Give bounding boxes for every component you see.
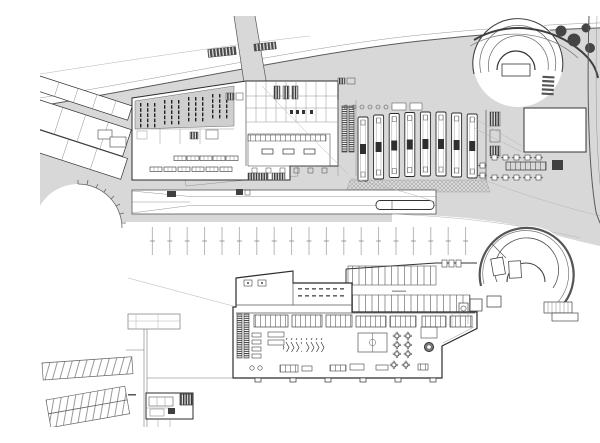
plant-equipment	[180, 394, 192, 405]
parking-row-south	[348, 295, 470, 314]
bus-platform	[374, 115, 384, 179]
pedestrian-crossing-west	[208, 47, 237, 58]
projection-line	[128, 278, 233, 306]
flat-roof-building	[524, 108, 586, 152]
parcel-annex	[110, 137, 126, 147]
bus-platform	[436, 112, 446, 176]
car	[509, 261, 522, 279]
roof-teeth	[442, 260, 461, 267]
parking-strip	[346, 260, 477, 314]
lower-building	[233, 271, 477, 382]
escalator	[342, 106, 347, 152]
loading-dock	[248, 173, 268, 180]
articulated-bus	[376, 201, 434, 210]
tree	[556, 26, 567, 37]
escalator	[237, 314, 242, 358]
bus-platform	[467, 114, 477, 178]
bus-platform	[358, 117, 368, 181]
escalator	[349, 106, 354, 152]
access-ramp	[132, 189, 436, 214]
bar-counter	[506, 162, 546, 170]
drawing-canvas	[40, 16, 600, 427]
escalator	[244, 314, 249, 358]
bike-racks	[306, 338, 325, 352]
tree	[585, 43, 595, 53]
bus-platform	[405, 113, 415, 177]
kiosk-row	[254, 315, 472, 327]
ramp-kiosk	[167, 191, 176, 197]
bike-racks	[283, 338, 302, 352]
spiral-ramp-bottom	[470, 226, 578, 322]
tree	[568, 34, 581, 47]
terminal-building	[132, 81, 338, 180]
car	[487, 296, 501, 307]
aisle-marking	[392, 291, 406, 292]
bus-platform	[452, 113, 462, 177]
column-grid-ticks	[144, 227, 476, 257]
technical-room	[128, 393, 193, 427]
parking-row-north	[348, 266, 436, 285]
kitchen-block	[552, 160, 563, 170]
bus-platform	[389, 114, 399, 178]
sports-court	[358, 333, 387, 352]
car	[470, 299, 482, 311]
angled-parking-band-2	[46, 386, 130, 427]
bus-platform	[420, 112, 430, 176]
angled-parking-band-1	[42, 357, 133, 380]
architectural-drawing	[40, 16, 600, 427]
ramp-kiosk	[236, 189, 243, 195]
car	[491, 257, 506, 276]
loading-dock	[272, 173, 285, 180]
